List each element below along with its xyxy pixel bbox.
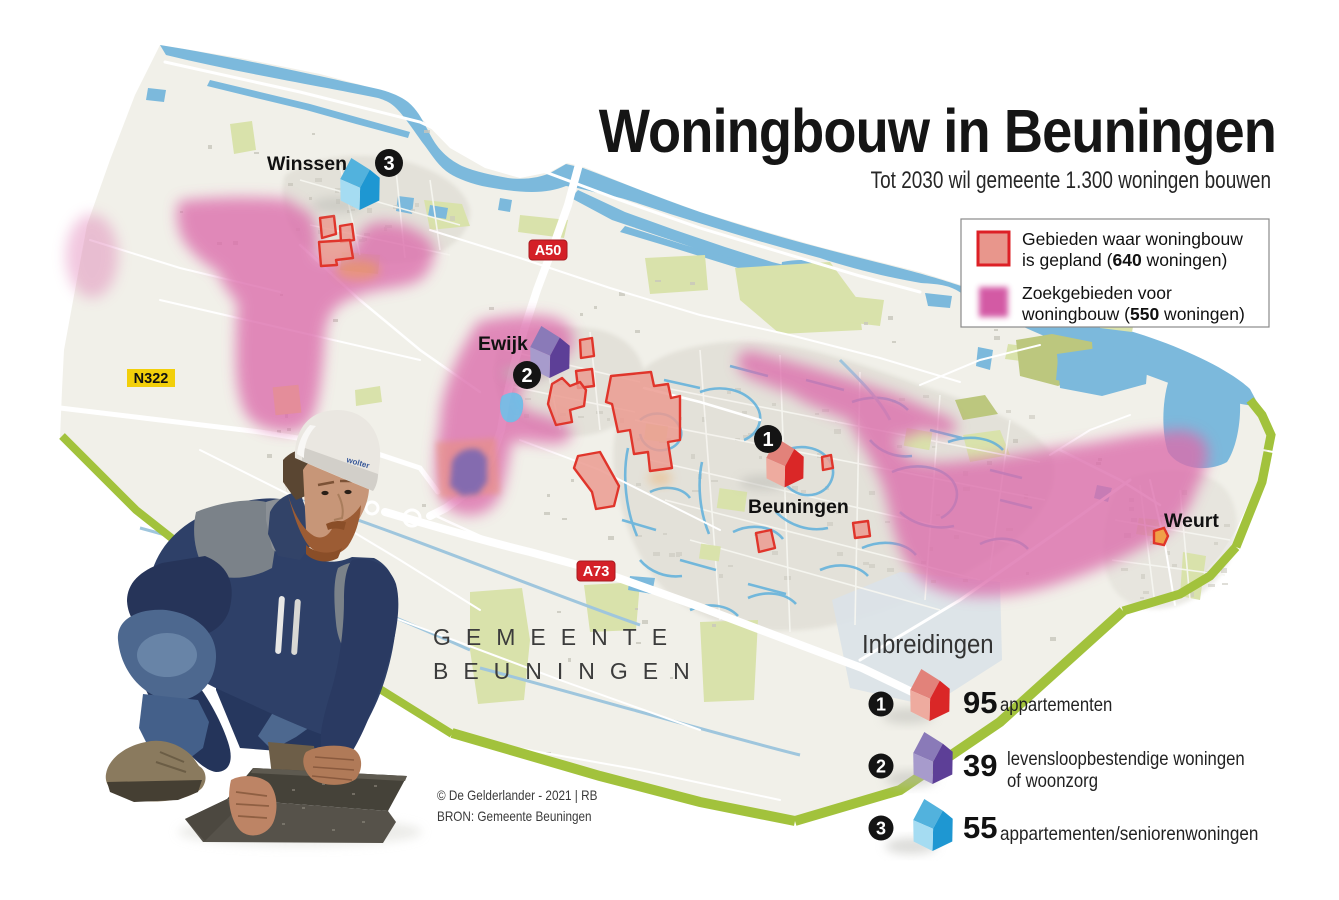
- svg-text:N322: N322: [134, 371, 169, 387]
- svg-text:Weurt: Weurt: [1164, 510, 1219, 532]
- svg-text:1: 1: [762, 429, 773, 451]
- svg-text:woningbouw (550 woningen): woningbouw (550 woningen): [1021, 304, 1245, 324]
- svg-text:Ewijk: Ewijk: [478, 333, 528, 355]
- svg-text:BRON: Gemeente Beuningen: BRON: Gemeente Beuningen: [437, 809, 592, 824]
- svg-text:Beuningen: Beuningen: [748, 496, 849, 518]
- svg-text:© De Gelderlander - 2021 | RB: © De Gelderlander - 2021 | RB: [437, 788, 597, 803]
- svg-text:95: 95: [963, 685, 997, 720]
- svg-text:2: 2: [876, 756, 886, 776]
- svg-text:levensloopbestendige woningen: levensloopbestendige woningen: [1007, 748, 1245, 769]
- svg-text:appartementen: appartementen: [1000, 694, 1112, 715]
- svg-text:2: 2: [521, 365, 532, 387]
- svg-text:GEMEENTE: GEMEENTE: [433, 624, 682, 650]
- svg-text:Inbreidingen: Inbreidingen: [862, 630, 994, 659]
- svg-text:3: 3: [383, 153, 394, 175]
- svg-text:Woningbouw in Beuningen: Woningbouw in Beuningen: [599, 98, 1276, 166]
- svg-text:Zoekgebieden voor: Zoekgebieden voor: [1022, 283, 1172, 303]
- svg-text:Winssen: Winssen: [267, 153, 347, 175]
- svg-text:Tot 2030 wil gemeente 1.300 wo: Tot 2030 wil gemeente 1.300 woningen bou…: [871, 166, 1271, 194]
- svg-text:55: 55: [963, 810, 997, 845]
- svg-text:3: 3: [876, 818, 886, 838]
- svg-text:39: 39: [963, 748, 997, 783]
- svg-text:Gebieden waar woningbouw: Gebieden waar woningbouw: [1022, 229, 1243, 249]
- svg-text:BEUNINGEN: BEUNINGEN: [433, 658, 705, 684]
- svg-text:is gepland (640 woningen): is gepland (640 woningen): [1022, 250, 1227, 270]
- svg-text:A50: A50: [535, 243, 562, 259]
- svg-text:of woonzorg: of woonzorg: [1007, 770, 1098, 791]
- svg-text:A73: A73: [583, 564, 610, 580]
- svg-text:appartementen/seniorenwoningen: appartementen/seniorenwoningen: [1000, 823, 1258, 844]
- svg-text:1: 1: [876, 694, 886, 714]
